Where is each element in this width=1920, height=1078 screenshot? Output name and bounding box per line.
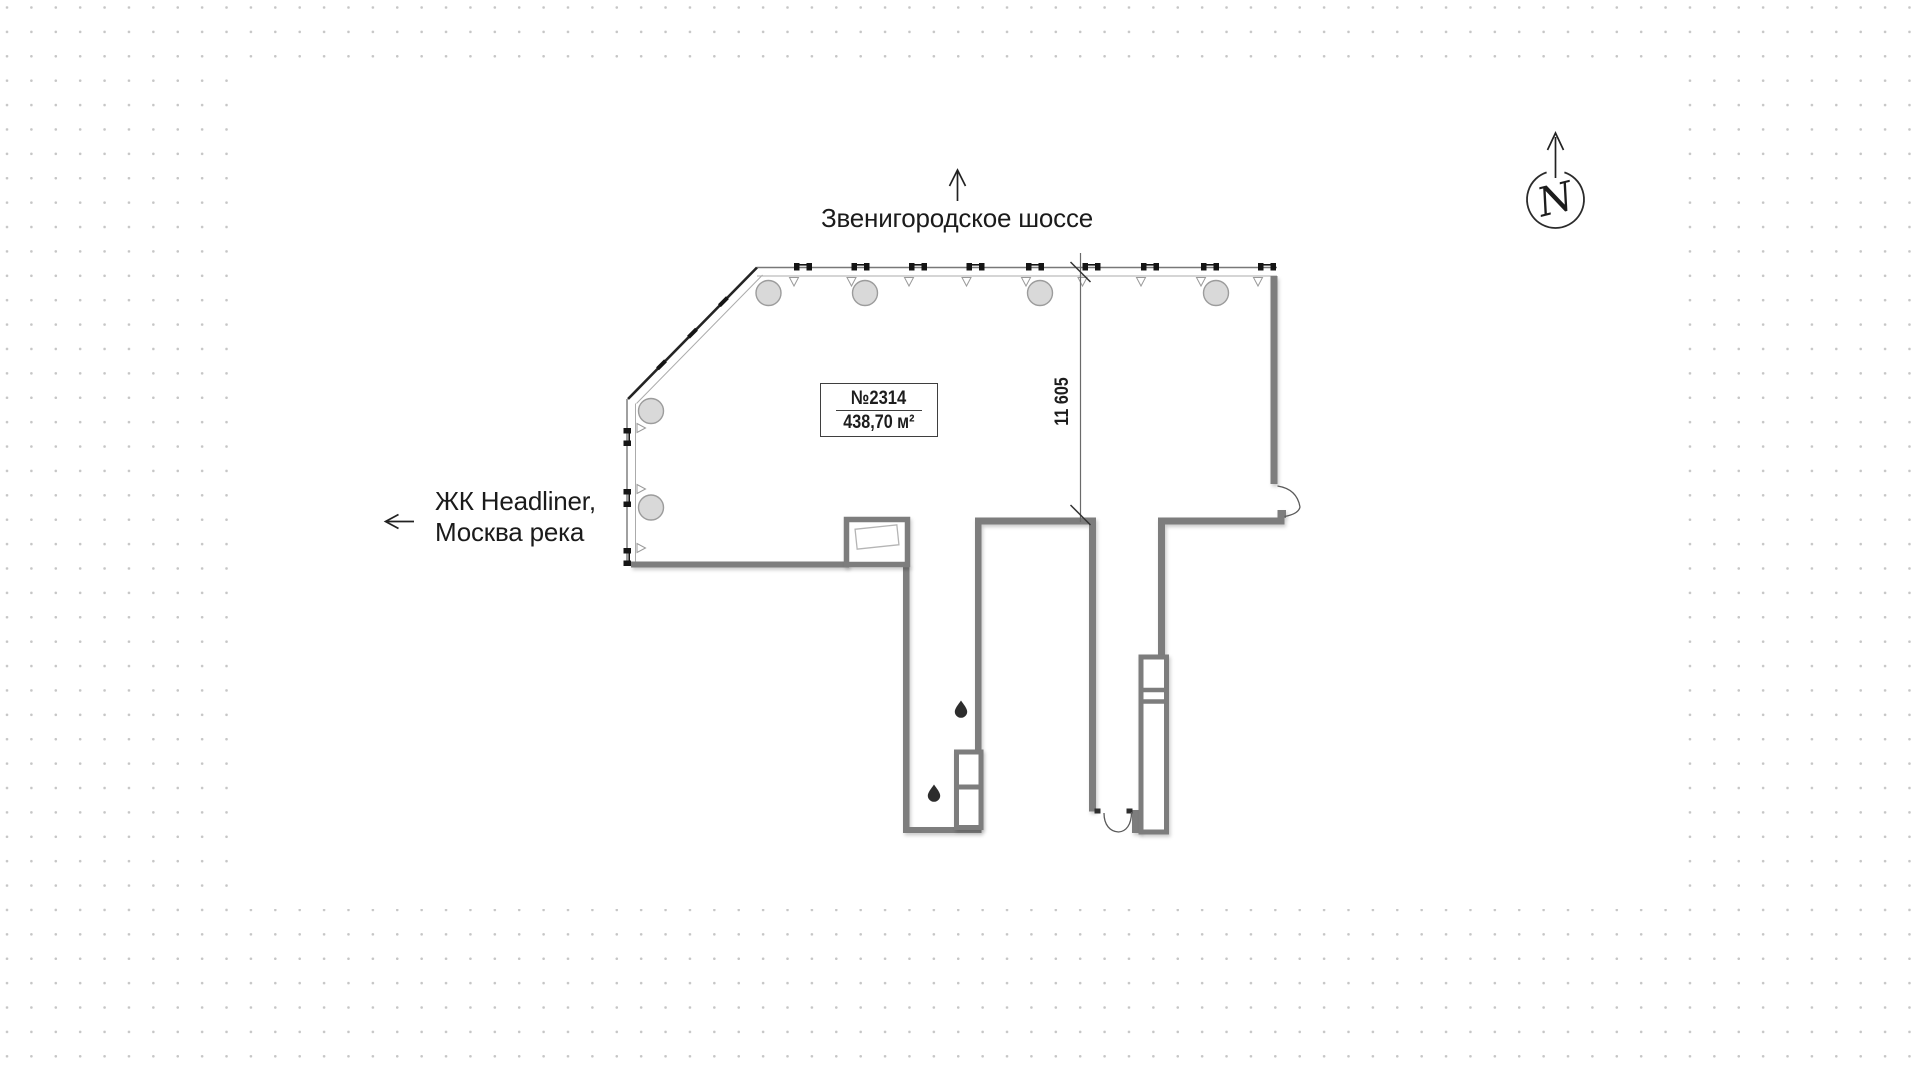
wall-mid-bottom <box>975 518 1096 525</box>
unit-label-box: №2314 438,70 м² <box>820 383 938 437</box>
compass-north-letter: N <box>1532 173 1580 227</box>
walls <box>631 276 1286 833</box>
column-icon <box>639 399 664 424</box>
page: { "plan": { "unit_number": "№2314", "uni… <box>0 0 1920 1078</box>
landmark-label-line1: ЖК Headliner, <box>435 486 675 517</box>
shaft-entry-corridor <box>1141 657 1167 832</box>
wall-wet-wing-left <box>903 565 910 833</box>
wall-right <box>1271 276 1278 484</box>
shaft-left <box>847 520 908 565</box>
door-swing-bottom-icon <box>1104 812 1132 832</box>
floor-plan-drawing: N <box>0 0 1920 1078</box>
street-label: Звенигородское шоссе <box>807 203 1107 233</box>
column-icon <box>853 281 878 306</box>
unit-number: №2314 <box>846 387 911 409</box>
wall-entry-corridor-right <box>1158 518 1165 658</box>
column-icon <box>1204 281 1229 306</box>
column-icon <box>1028 281 1053 306</box>
shaft-wet-zone <box>957 752 982 828</box>
landmark-label-line2: Москва река <box>435 517 675 548</box>
water-drop-icon <box>955 701 967 718</box>
wall-bottom-main <box>631 562 849 568</box>
wall-bottom-right-room <box>1158 518 1285 525</box>
compass: N <box>1527 133 1584 228</box>
glazing-diagonal-wall <box>628 268 763 404</box>
water-drop-icon <box>928 785 940 802</box>
unit-area: 438,70 м² <box>837 412 921 434</box>
street-arrow-icon <box>950 170 966 201</box>
column-icon <box>756 281 781 306</box>
glazing-top-wall <box>757 263 1277 286</box>
unit-label-divider <box>836 410 922 411</box>
landmark-label: ЖК Headliner, Москва река <box>435 486 675 547</box>
dimension-value: 11 605 <box>1051 361 1075 441</box>
wall-entry-corridor-left <box>1089 518 1096 812</box>
landmark-arrow-icon <box>386 515 415 529</box>
door-jamb-tick-left <box>1095 809 1101 814</box>
